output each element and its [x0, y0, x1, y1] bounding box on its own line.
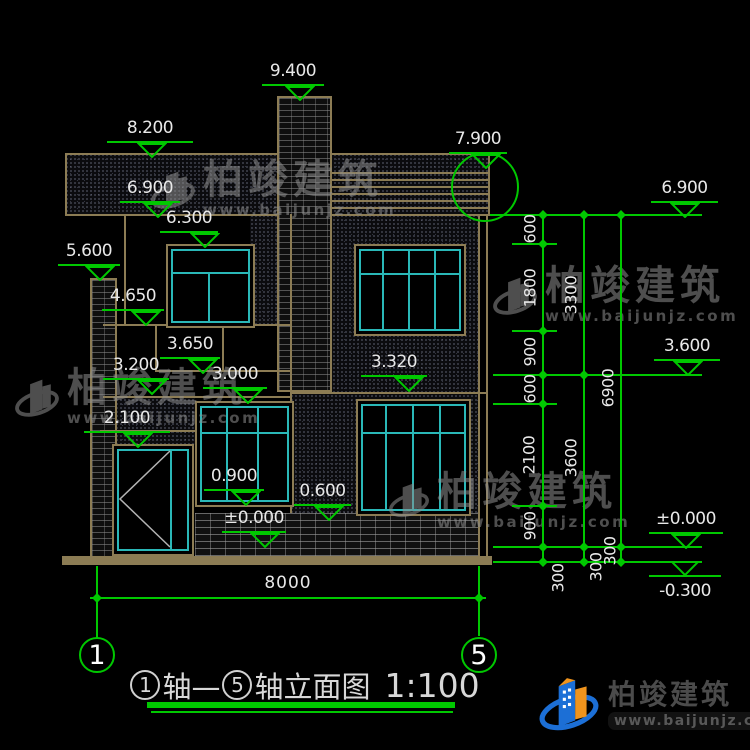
roof-band-left-edge	[65, 153, 67, 216]
level-label: 3.320	[361, 352, 427, 372]
level-triangle-icon	[123, 433, 153, 448]
dim-tick	[538, 210, 548, 220]
ground-slab	[62, 556, 492, 565]
title-axis-circle-5: 5	[222, 670, 252, 700]
dim-tick	[579, 542, 589, 552]
level-label: 6.900	[120, 178, 180, 198]
elevation-drawing-canvas: 柏竣建筑 www.baijunjz.com 柏竣建筑 www.baijunjz.…	[0, 0, 750, 750]
level-triangle-icon	[285, 86, 315, 101]
level-label: 2.100	[84, 408, 170, 428]
title-text: 轴—	[162, 664, 220, 706]
dim-label: 2100	[520, 436, 539, 475]
dim-tick	[92, 593, 102, 603]
window-mullion	[200, 432, 289, 434]
title-text: 轴立面图	[254, 664, 370, 706]
level-label: 3.000	[203, 364, 267, 384]
brand-text: 柏竣建筑 www.baijunjz.com	[608, 680, 750, 731]
dim-tick	[579, 210, 589, 220]
axis-number: 1	[88, 640, 105, 671]
dim-tick	[474, 593, 484, 603]
level-label: -0.300	[649, 581, 721, 601]
dim-label: 600	[521, 214, 540, 243]
level-triangle-icon	[190, 233, 220, 248]
title-underline-thick	[147, 702, 455, 708]
level-triangle-icon	[231, 491, 261, 506]
level-triangle-icon	[85, 266, 115, 281]
window-mullion	[359, 273, 461, 275]
level-label: 0.900	[204, 466, 264, 486]
dim-label: 6900	[599, 369, 618, 408]
dim-chain-line-1	[542, 212, 544, 566]
level-triangle-icon	[137, 143, 167, 158]
level-label: 3.600	[654, 336, 720, 356]
window-frame	[171, 249, 250, 323]
watermark: 柏竣建筑 www.baijunjz.com	[388, 472, 630, 531]
window-frame	[359, 249, 461, 331]
extension-line	[512, 330, 557, 332]
dim-tick	[579, 370, 589, 380]
dim-chain-line-2	[583, 212, 585, 566]
level-triangle-icon	[670, 561, 700, 576]
level-label: 9.400	[262, 61, 324, 81]
level-triangle-icon	[670, 203, 700, 218]
chimney	[277, 96, 332, 392]
dim-label: 1800	[521, 269, 540, 308]
level-label: 3.200	[103, 355, 169, 375]
level-triangle-icon	[137, 380, 167, 395]
dim-label: 600	[521, 374, 540, 403]
title-underline-thin	[151, 711, 453, 713]
level-label: 6.300	[160, 208, 218, 228]
title-axis-number: 1	[139, 673, 152, 697]
dim-label: 3600	[562, 439, 581, 478]
level-triangle-icon	[131, 311, 161, 326]
bottom-dim-line	[90, 597, 486, 599]
window-mullion	[434, 249, 436, 331]
dim-label: 300	[549, 563, 568, 592]
title-axis-number: 5	[231, 673, 244, 697]
window-upper-left	[166, 244, 255, 328]
brand-url: www.baijunjz.com	[608, 712, 750, 730]
watermark-name: 柏竣建筑	[203, 160, 396, 200]
watermark-logo-icon	[388, 472, 430, 528]
level-label: 6.900	[651, 178, 718, 198]
watermark-logo-icon	[14, 368, 60, 428]
level-label: 8.200	[107, 118, 193, 138]
window-upper-right	[354, 244, 466, 336]
floor-line	[290, 392, 486, 394]
level-label: 7.900	[449, 129, 507, 149]
window-mullion	[208, 272, 210, 323]
window-mullion	[382, 249, 384, 331]
brand-name: 柏竣建筑	[608, 680, 750, 711]
dim-tick	[538, 557, 548, 567]
dim-chain-line-3	[620, 212, 622, 566]
entry-door	[112, 444, 194, 556]
level-triangle-icon	[471, 154, 501, 169]
dim-tick	[538, 370, 548, 380]
brand-logo: 柏竣建筑 www.baijunjz.com	[538, 674, 750, 736]
level-triangle-icon	[314, 506, 344, 521]
brand-logo-icon	[538, 674, 600, 736]
bottom-width-dim: 8000	[250, 573, 326, 593]
extension-line	[512, 505, 557, 507]
level-triangle-icon	[394, 377, 424, 392]
level-label: 0.600	[294, 481, 351, 501]
level-label: 4.650	[102, 286, 164, 306]
dim-tick	[538, 399, 548, 409]
level-label: 3.650	[160, 334, 220, 354]
axis-bubble-1: 1	[79, 637, 115, 673]
dim-tick	[616, 210, 626, 220]
level-triangle-icon	[673, 361, 703, 376]
title-scale: 1:100	[384, 666, 479, 705]
title-axis-circle-1: 1	[130, 670, 160, 700]
watermark-text: 柏竣建筑 www.baijunjz.com	[203, 160, 396, 219]
dim-label: 900	[521, 511, 540, 540]
window-mullion	[408, 249, 410, 331]
dim-label: 300	[601, 536, 620, 565]
dim-tick	[538, 542, 548, 552]
window-mullion	[385, 404, 387, 511]
level-triangle-icon	[671, 534, 701, 549]
door-swing-lines	[117, 449, 175, 549]
dim-tick	[538, 239, 548, 249]
level-triangle-icon	[233, 389, 263, 404]
level-triangle-icon	[250, 533, 280, 548]
dim-tick	[538, 326, 548, 336]
watermark-url: www.baijunjz.com	[203, 201, 396, 219]
window-mullion	[171, 272, 250, 274]
dim-label: 900	[521, 337, 540, 366]
level-label: 5.600	[58, 241, 120, 261]
level-label: ±0.000	[222, 508, 286, 528]
dim-label: 3300	[562, 276, 581, 315]
level-label: ±0.000	[649, 509, 723, 529]
drawing-title: 1 轴— 5 轴立面图 1:100	[140, 664, 470, 706]
